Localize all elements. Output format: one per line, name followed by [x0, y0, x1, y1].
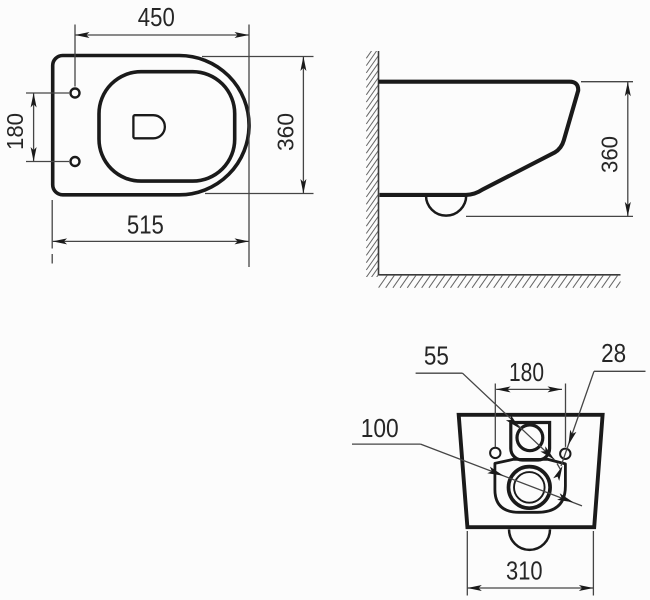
svg-text:360: 360 — [596, 136, 622, 173]
svg-text:100: 100 — [361, 413, 399, 443]
svg-text:180: 180 — [2, 113, 28, 150]
svg-text:310: 310 — [506, 556, 543, 586]
svg-text:515: 515 — [127, 210, 164, 240]
svg-text:55: 55 — [424, 341, 449, 371]
svg-text:450: 450 — [138, 2, 175, 32]
svg-text:360: 360 — [273, 113, 299, 151]
svg-text:180: 180 — [509, 357, 544, 387]
svg-text:28: 28 — [601, 338, 626, 368]
